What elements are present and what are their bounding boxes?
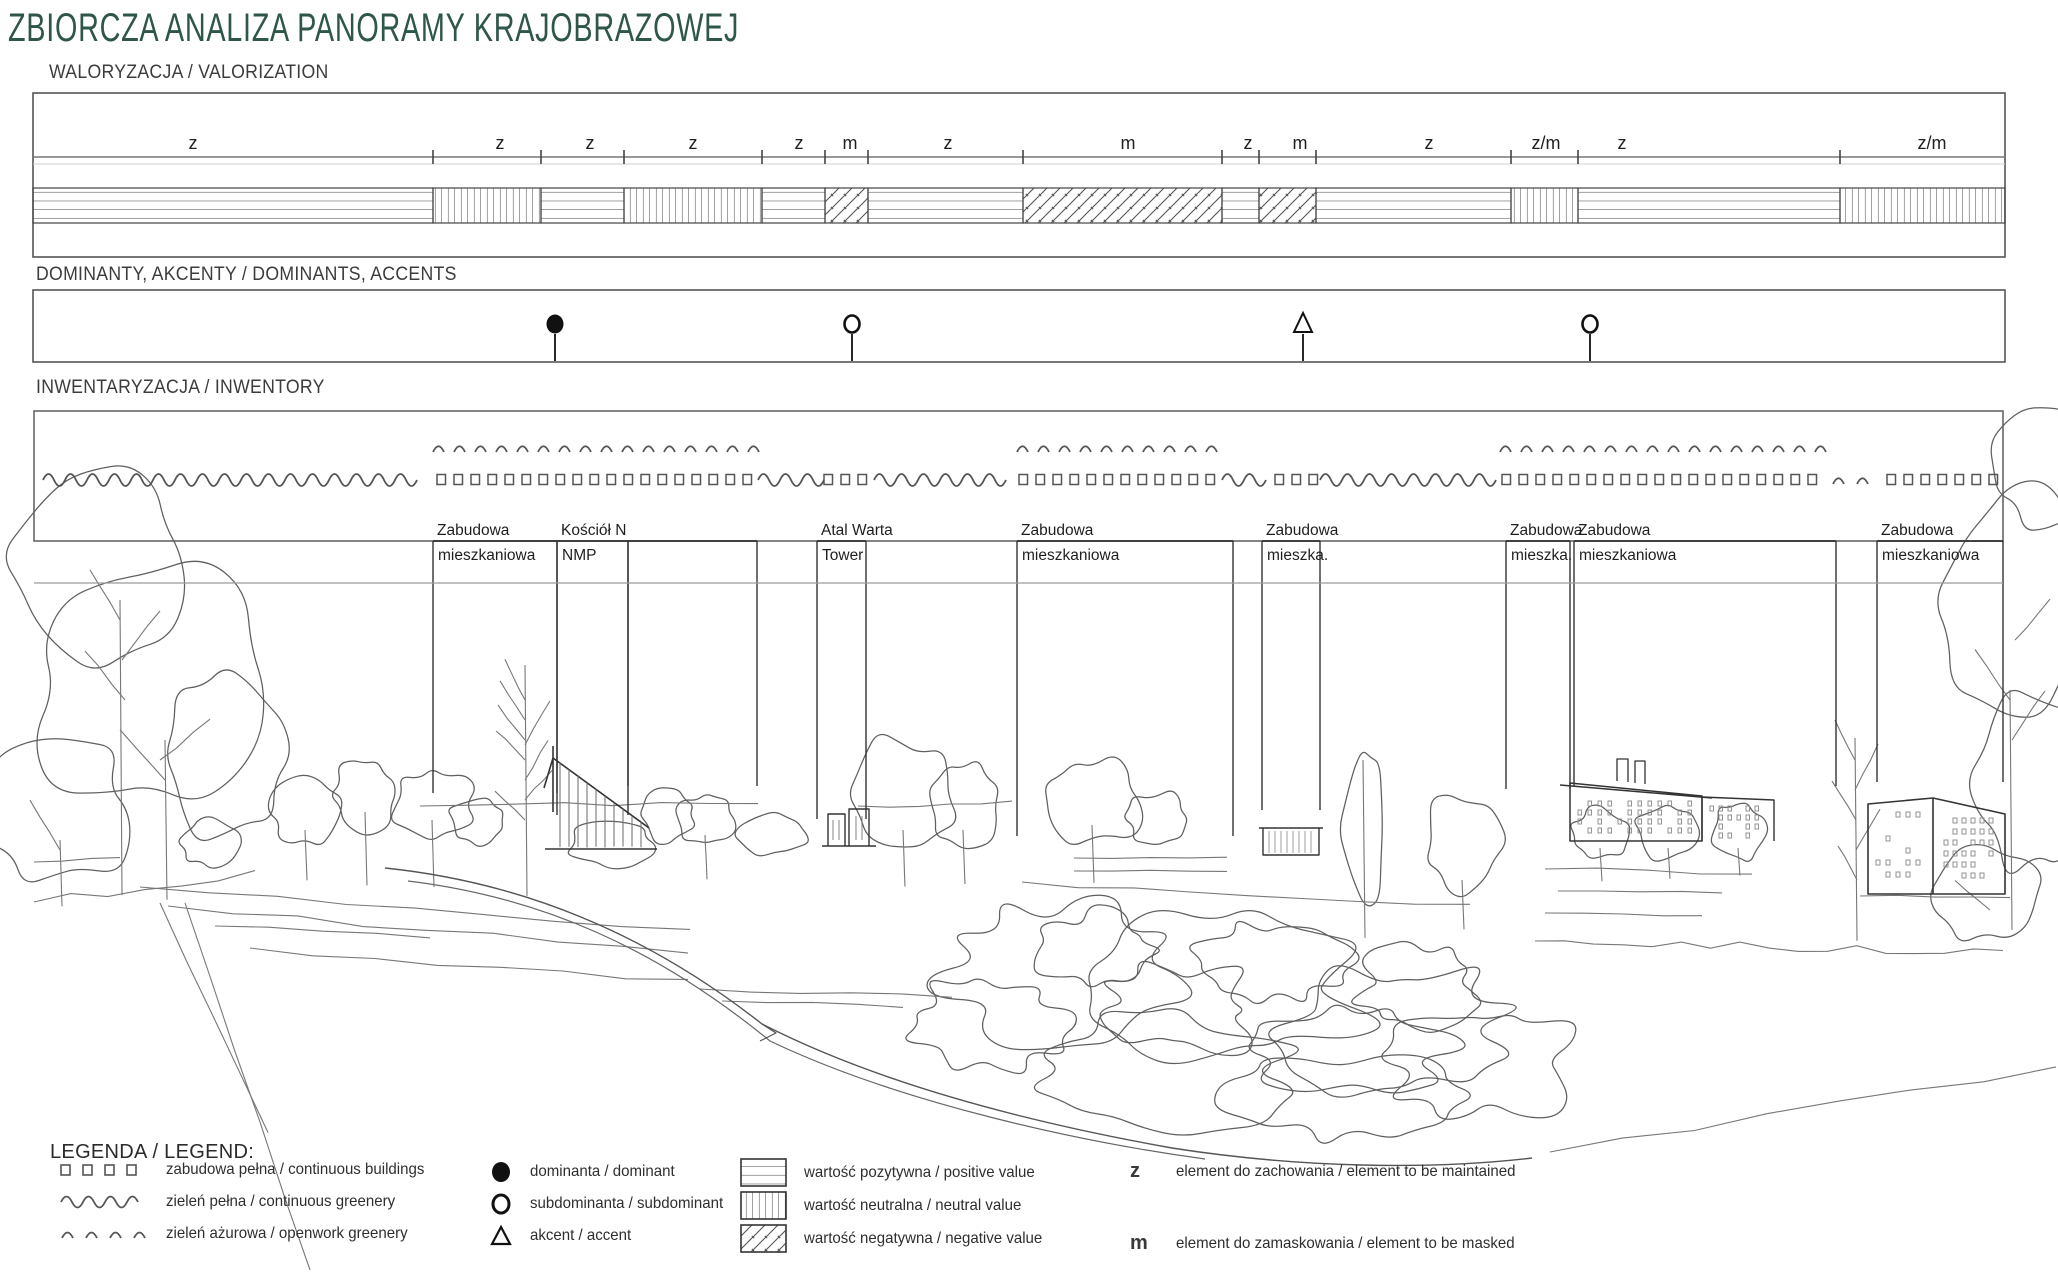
feature-label-line2: mieszka. [1511,547,1572,564]
continuous-greenery-run [758,474,824,486]
continuous-greenery-run [874,474,1006,486]
valorization-mark: z [944,133,953,153]
valorization-segment-neutral [433,188,541,223]
valorization-box [33,93,2005,257]
continuous-buildings-run [824,475,867,485]
inventory-feature: Zabudowamieszka. [1262,522,1339,810]
feature-label-line1: Kościół N [561,522,626,539]
valorization-segment-positive [33,188,433,223]
continuous-buildings-run [1019,475,1215,485]
feature-label-line1: Zabudowa [1266,522,1339,539]
hatch-diagonal-icon [740,1224,788,1254]
valorization-segment-negative [1259,188,1316,223]
wave-icon [58,1192,150,1212]
feature-label-line2: mieszka. [1267,547,1328,564]
triangle-icon [488,1224,514,1248]
feature-label-line2: NMP [562,547,596,564]
feature-label-line1: Zabudowa [1881,522,1954,539]
valorization-mark: z [1244,133,1253,153]
valorization-segment-positive [1578,188,1840,223]
hatch-horizontal-icon [740,1158,788,1188]
valorization-segment-neutral [1840,188,2005,223]
valorization-segment-neutral [1511,188,1578,223]
feature-label-line1: Zabudowa [1510,522,1583,539]
valorization-section-label: WALORYZACJA / VALORIZATION [49,62,329,84]
valorization-mark: z [795,133,804,153]
squares-row-icon [58,1160,150,1180]
filled-circle-icon [488,1160,514,1184]
valorization-mark: z [496,133,505,153]
dominants-strip [547,313,1598,361]
legend-letter-m: m [1130,1232,1160,1255]
legend-item-neutral-value: wartość neutralna / neutral value [740,1191,1035,1221]
dominants-box [33,290,2005,362]
accent-symbol [1294,313,1312,332]
legend-item-continuous-greenery: zieleń pełna / continuous greenery [58,1192,410,1212]
valorization-mark: z [586,133,595,153]
dominants-section-label: DOMINANTY, AKCENTY / DOMINANTS, ACCENTS [36,264,457,286]
valorization-mark: m [1293,133,1308,153]
subdominant-symbol [1583,316,1598,333]
valorization-segment-negative [1023,188,1222,223]
feature-label-line1: Atal Warta [821,522,893,539]
continuous-buildings-run [1887,475,1998,485]
inventory-feature: Zabudowamieszkaniowa [433,522,557,793]
continuous-greenery-run [1222,474,1266,486]
inventory-feature: Atal WartaTower [817,522,893,819]
open-circle-icon [488,1192,514,1216]
feature-label-line2: Tower [822,547,863,564]
legend-item-subdominant: subdominanta / subdominant [488,1192,735,1216]
inventory-feature: Zabudowamieszka. [1506,522,1583,789]
feature-label-line2: mieszkaniowa [1022,547,1120,564]
legend-item-continuous-buildings: zabudowa pełna / continuous buildings [58,1160,441,1180]
inventory-strip: ZabudowamieszkaniowaKościół NNMPAtal War… [34,446,2003,836]
valorization-mark: z [1618,133,1627,153]
valorization-mark: z [189,133,198,153]
continuous-greenery-run [43,474,417,486]
caret-row-icon [58,1224,150,1244]
board-graphics: zzzzzmzmzmzz/mzz/m ZabudowamieszkaniowaK… [0,0,2058,1276]
valorization-mark: z [1425,133,1434,153]
valorization-mark: z/m [1532,133,1561,153]
feature-label-line2: mieszkaniowa [1882,547,1980,564]
feature-label-line1: Zabudowa [437,522,510,539]
hatch-vertical-icon [740,1191,788,1221]
valorization-segment-negative [825,188,868,223]
valorization-strip: zzzzzmzmzmzz/mzz/m [33,133,2005,223]
dominant-symbol [547,315,564,334]
legend-item-element-maintained: z element do zachowania / element to be … [1130,1160,1537,1183]
legend-item-openwork-greenery: zieleń ażurowa / openwork greenery [58,1224,423,1244]
valorization-segment-positive [1222,188,1259,223]
inventory-section-label: INWENTARYZACJA / INWENTORY [36,377,325,399]
continuous-buildings-run [1502,475,1817,485]
legend-item-negative-value: wartość negatywna / negative value [740,1224,1057,1254]
openwork-greenery-row [1500,446,1826,452]
legend-item-element-masked: m element do zamaskowania / element to b… [1130,1232,1536,1255]
valorization-segment-positive [541,188,624,223]
openwork-greenery-row [433,446,759,452]
valorization-segment-neutral [624,188,762,223]
valorization-mark: m [1121,133,1136,153]
valorization-segment-positive [1316,188,1511,223]
openwork-greenery-row [1833,478,1868,484]
inventory-feature [628,541,757,786]
feature-label-line2: mieszkaniowa [438,547,536,564]
valorization-mark: z [689,133,698,153]
continuous-greenery-run [1320,474,1496,486]
valorization-mark: m [843,133,858,153]
feature-label-line2: mieszkaniowa [1579,547,1677,564]
inventory-feature: Zabudowamieszkaniowa [1017,522,1233,836]
legend-item-accent: akcent / accent [488,1224,638,1248]
valorization-segment-positive [762,188,825,223]
analysis-board: zzzzzmzmzmzz/mzz/m ZabudowamieszkaniowaK… [0,0,2058,1276]
inventory-feature: Zabudowamieszkaniowa [1877,522,2003,782]
valorization-mark: z/m [1918,133,1947,153]
inventory-feature: Zabudowamieszkaniowa [1574,522,1836,786]
legend-item-dominant: dominanta / dominant [488,1160,684,1184]
legend-item-positive-value: wartość pozytywna / positive value [740,1158,1049,1188]
feature-label-line1: Zabudowa [1021,522,1094,539]
subdominant-symbol [845,316,860,333]
openwork-greenery-row [1017,446,1217,452]
valorization-segment-positive [868,188,1023,223]
legend-letter-z: z [1130,1160,1160,1183]
continuous-buildings-run [1275,475,1318,485]
feature-label-line1: Zabudowa [1578,522,1651,539]
inventory-feature: Kościół NNMP [557,522,628,815]
page-title: ZBIORCZA ANALIZA PANORAMY KRAJOBRAZOWEJ [8,6,739,51]
continuous-buildings-run [437,475,752,485]
